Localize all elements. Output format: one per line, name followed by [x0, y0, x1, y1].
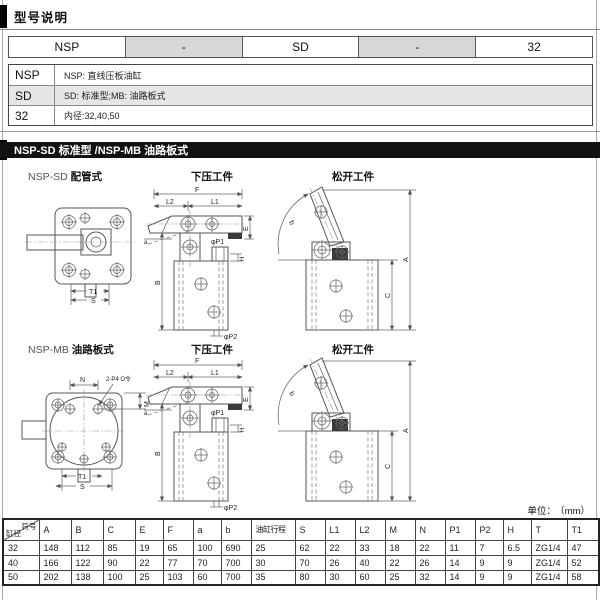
spec-value-cell: 6.5	[503, 540, 531, 555]
spec-value-cell: 47	[567, 540, 599, 555]
spec-col-header-M: M	[385, 519, 415, 540]
spec-value-cell: 18	[385, 540, 415, 555]
spec-value-cell: 9	[503, 555, 531, 570]
legend-description: NSP: 直线压板油缸	[55, 65, 142, 85]
dim-label-t1: T1	[78, 474, 86, 481]
dim-label-p1: φP1	[211, 410, 224, 417]
spec-table: 符号缸径ABCEFab油缸行程SL1L2MNP1P2HTT1 321481128…	[2, 518, 600, 586]
spec-col-header-A: A	[39, 519, 71, 540]
press-view-sd-drawing: F L2 L1 E φP1 H	[142, 182, 282, 340]
dim-label-l1: L1	[211, 370, 219, 377]
spec-col-header-P1: P1	[445, 519, 475, 540]
spec-value-cell: 14	[445, 570, 475, 585]
spec-value-cell: 70	[295, 555, 325, 570]
section-divider	[0, 131, 600, 132]
dim-label-a-height: A	[403, 257, 410, 262]
page-left-border	[2, 0, 3, 600]
release-view-sd-drawing: A C b	[276, 182, 426, 340]
spec-value-cell: ZG1/4	[531, 570, 567, 585]
dim-label-n: N	[80, 377, 85, 384]
dim-label-l2: L2	[166, 199, 174, 206]
spec-value-cell: ZG1/4	[531, 555, 567, 570]
dim-label-t1: T1	[89, 289, 97, 296]
spec-value-cell: 60	[355, 570, 385, 585]
spec-value-cell: 65	[163, 540, 193, 555]
spec-value-cell: 52	[567, 555, 599, 570]
dim-label-l2: L2	[166, 370, 174, 377]
spec-value-cell: 58	[567, 570, 599, 585]
spec-col-header-T1: T1	[567, 519, 599, 540]
row1-variant-prefix: NSP-SD	[28, 171, 68, 183]
spec-value-cell: 122	[71, 555, 103, 570]
spec-value-cell: 80	[295, 570, 325, 585]
spec-value-cell: 138	[71, 570, 103, 585]
spec-col-header-L2: L2	[355, 519, 385, 540]
dim-label-h: H	[240, 428, 246, 432]
dim-label-p2: φP2	[224, 334, 237, 340]
spec-col-header-P2: P2	[475, 519, 503, 540]
spec-bore-cell: 50	[3, 570, 39, 585]
spec-value-cell: 166	[39, 555, 71, 570]
front-view-sd-drawing: T1 S	[25, 186, 150, 331]
spec-value-cell: 62	[295, 540, 325, 555]
press-view-mb-drawing: F L2 L1 E φP1 H	[142, 353, 282, 511]
spec-value-cell: 22	[325, 540, 355, 555]
spec-value-cell: 77	[163, 555, 193, 570]
dim-label-h: H	[240, 257, 246, 261]
dim-label-l1: L1	[211, 199, 219, 206]
spec-col-header-T: T	[531, 519, 567, 540]
model-code-strip: NSP - SD - 32	[8, 36, 593, 58]
spec-value-cell: 112	[71, 540, 103, 555]
spec-value-cell: 148	[39, 540, 71, 555]
port-note-label: 2-P4 O令	[106, 375, 131, 383]
legend-code: SD	[9, 86, 55, 105]
spec-value-cell: 30	[251, 555, 295, 570]
spec-value-cell: 60	[193, 570, 221, 585]
legend-code: NSP	[9, 65, 55, 85]
spec-value-cell: 22	[385, 555, 415, 570]
dim-label-e: E	[243, 397, 250, 402]
spec-header-row: 符号缸径ABCEFab油缸行程SL1L2MNP1P2HTT1	[3, 519, 599, 540]
dim-label-p2: φP2	[224, 505, 237, 511]
spec-value-cell: 19	[135, 540, 163, 555]
spec-value-cell: 100	[193, 540, 221, 555]
unit-note: 单位：（mm）	[523, 503, 590, 517]
spec-value-cell: 700	[221, 570, 251, 585]
spec-value-cell: 22	[135, 555, 163, 570]
catalog-page: 型号说明 NSP - SD - 32 NSP NSP: 直线压板油缸 SD SD…	[0, 0, 600, 600]
spec-value-cell: 26	[415, 555, 445, 570]
spec-col-header-E: E	[135, 519, 163, 540]
row1-variant-name: 配管式	[71, 171, 103, 183]
dim-label-angle-a: a	[144, 240, 148, 246]
dim-label-f: F	[195, 187, 199, 194]
dim-label-c: C	[385, 464, 392, 469]
spec-value-cell: 202	[39, 570, 71, 585]
spec-value-cell: 100	[103, 570, 135, 585]
spec-value-cell: 9	[503, 570, 531, 585]
dim-label-angle-a: a	[144, 411, 148, 417]
dim-label-c: C	[385, 293, 392, 298]
section1-title: 型号说明	[14, 7, 68, 26]
dim-label-a-height: A	[403, 428, 410, 433]
spec-value-cell: 690	[221, 540, 251, 555]
front-view-mb-drawing: N 2-P4 O令 M T1 S	[18, 355, 153, 505]
spec-col-header-B: B	[71, 519, 103, 540]
spec-row-40: 40166122902277707003070264022261499ZG1/4…	[3, 555, 599, 570]
spec-value-cell: 9	[475, 570, 503, 585]
spec-value-cell: 22	[415, 540, 445, 555]
spec-col-header-a: a	[193, 519, 221, 540]
model-code-segment-1: NSP	[8, 37, 126, 57]
dim-label-e: E	[243, 226, 250, 231]
spec-col-header-F: F	[163, 519, 193, 540]
model-legend-table: NSP NSP: 直线压板油缸 SD SD: 标准型;MB: 油路板式 32 内…	[8, 64, 593, 126]
dim-label-b-height: B	[155, 280, 162, 285]
spec-col-header-N: N	[415, 519, 445, 540]
spec-value-cell: 33	[355, 540, 385, 555]
legend-row-sd: SD SD: 标准型;MB: 油路板式	[9, 85, 592, 105]
spec-corner-cell: 符号缸径	[3, 519, 39, 540]
spec-col-header-b: b	[221, 519, 251, 540]
legend-code: 32	[9, 106, 55, 125]
spec-value-cell: 7	[475, 540, 503, 555]
spec-col-header-油缸行程: 油缸行程	[251, 519, 295, 540]
model-code-segment-3: 32	[476, 37, 593, 57]
spec-row-32: 321481128519651006902562223318221176.5ZG…	[3, 540, 599, 555]
spec-col-header-S: S	[295, 519, 325, 540]
spec-value-cell: 25	[251, 540, 295, 555]
spec-value-cell: 11	[445, 540, 475, 555]
dim-label-angle-b: b	[287, 220, 295, 227]
spec-value-cell: 25	[385, 570, 415, 585]
dim-label-f: F	[195, 358, 199, 365]
legend-description: SD: 标准型;MB: 油路板式	[55, 86, 166, 105]
row1-variant-label: NSP-SD 配管式	[28, 169, 102, 184]
spec-col-header-L1: L1	[325, 519, 355, 540]
spec-row-50: 5020213810025103607003580306025321499ZG1…	[3, 570, 599, 585]
spec-value-cell: 14	[445, 555, 475, 570]
spec-bore-cell: 40	[3, 555, 39, 570]
spec-value-cell: 700	[221, 555, 251, 570]
corner-top-label: 符号	[22, 521, 37, 532]
spec-col-header-C: C	[103, 519, 135, 540]
dim-label-p1: φP1	[211, 239, 224, 246]
model-description-header: 型号说明	[0, 5, 68, 28]
spec-value-cell: 85	[103, 540, 135, 555]
header-divider	[0, 29, 600, 30]
spec-value-cell: 32	[415, 570, 445, 585]
corner-bottom-label: 缸径	[6, 528, 21, 539]
page-right-border	[596, 0, 597, 600]
legend-row-nsp: NSP NSP: 直线压板油缸	[9, 65, 592, 85]
spec-value-cell: 40	[355, 555, 385, 570]
spec-value-cell: 90	[103, 555, 135, 570]
model-code-segment-2: SD	[243, 37, 360, 57]
dim-label-b-height: B	[155, 451, 162, 456]
dim-label-angle-b: b	[287, 391, 295, 398]
spec-col-header-H: H	[503, 519, 531, 540]
spec-value-cell: 70	[193, 555, 221, 570]
model-code-separator-2: -	[359, 37, 476, 57]
legend-description: 内径:32,40,50	[55, 106, 120, 125]
model-code-separator-1: -	[126, 37, 243, 57]
dim-label-s: S	[91, 298, 96, 305]
series-section-bar: NSP-SD 标准型 /NSP-MB 油路板式	[0, 142, 600, 158]
spec-value-cell: ZG1/4	[531, 540, 567, 555]
release-view-mb-drawing: A C b	[276, 353, 426, 511]
spec-value-cell: 26	[325, 555, 355, 570]
spec-value-cell: 30	[325, 570, 355, 585]
dim-label-s: S	[80, 484, 85, 491]
spec-value-cell: 35	[251, 570, 295, 585]
spec-bore-cell: 32	[3, 540, 39, 555]
spec-value-cell: 25	[135, 570, 163, 585]
legend-row-32: 32 内径:32,40,50	[9, 105, 592, 125]
spec-value-cell: 9	[475, 555, 503, 570]
spec-value-cell: 103	[163, 570, 193, 585]
unit-value: （mm）	[560, 506, 590, 517]
unit-label: 单位：	[527, 506, 556, 517]
header-black-tab	[0, 5, 7, 28]
